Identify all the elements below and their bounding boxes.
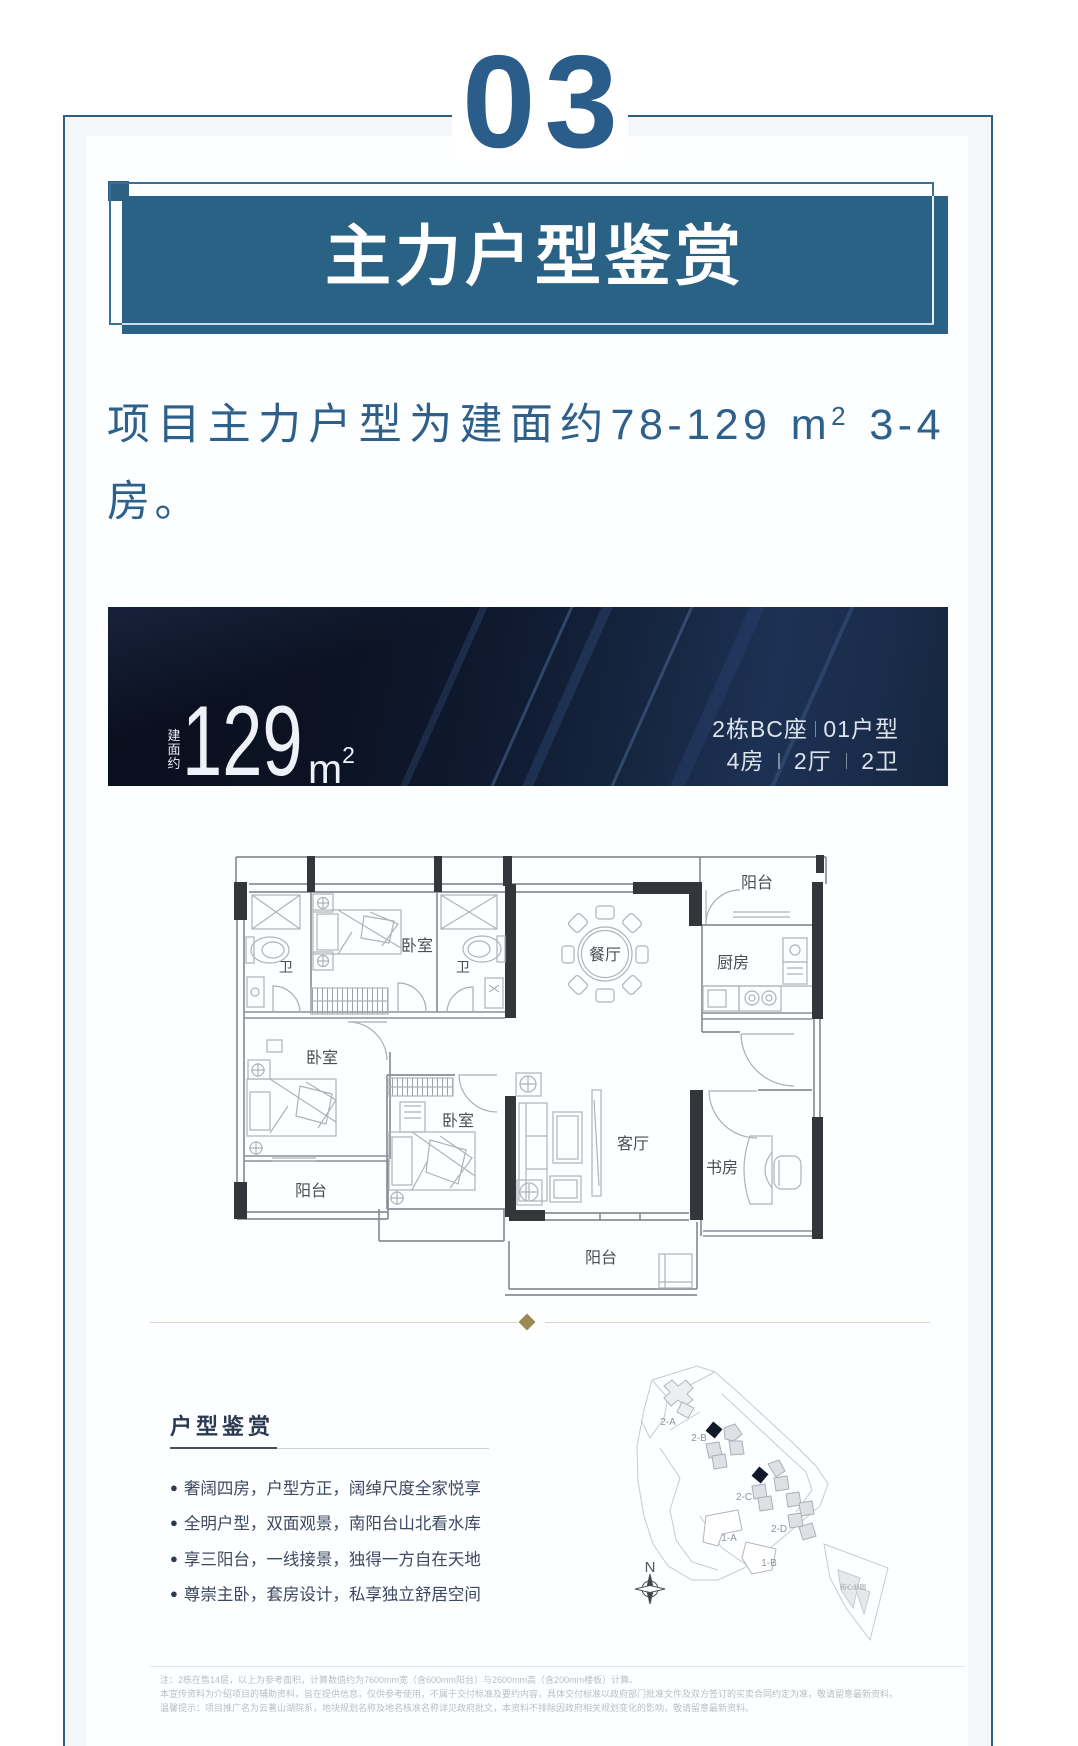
svg-text:书房: 书房 — [706, 1159, 738, 1177]
svg-text:2-D: 2-D — [771, 1524, 787, 1535]
svg-text:卧室: 卧室 — [401, 937, 433, 955]
svg-text:阳台: 阳台 — [741, 874, 773, 892]
svg-text:厨房: 厨房 — [717, 954, 749, 972]
svg-text:卫: 卫 — [456, 959, 470, 975]
svg-text:卧室: 卧室 — [442, 1112, 474, 1130]
svg-text:餐厅: 餐厅 — [589, 946, 621, 964]
svg-text:N: N — [645, 1559, 656, 1576]
svg-text:卫: 卫 — [279, 959, 293, 975]
svg-text:客厅: 客厅 — [617, 1135, 649, 1153]
svg-text:阳台: 阳台 — [295, 1182, 327, 1200]
svg-text:街心公园: 街心公园 — [840, 1582, 866, 1591]
svg-text:1-A: 1-A — [721, 1533, 737, 1544]
svg-text:阳台: 阳台 — [585, 1249, 617, 1267]
svg-text:2-C: 2-C — [736, 1492, 752, 1503]
svg-text:2-A: 2-A — [660, 1417, 676, 1428]
svg-text:卧室: 卧室 — [306, 1049, 338, 1067]
svg-text:1-B: 1-B — [761, 1558, 777, 1569]
svg-text:2-B: 2-B — [691, 1433, 707, 1444]
